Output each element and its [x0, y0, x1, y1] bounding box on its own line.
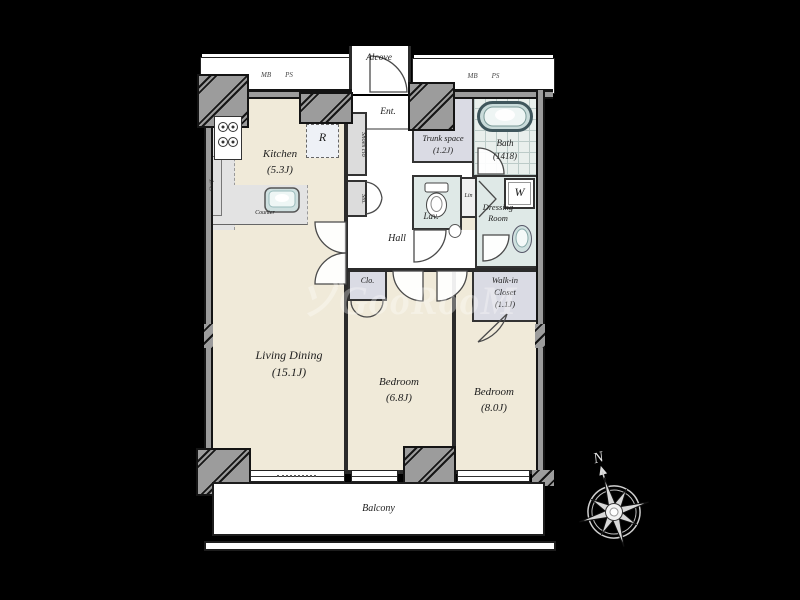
living-door-swing-upper	[315, 222, 346, 253]
toilet-icon	[420, 182, 453, 220]
vanity-sink-icon	[511, 224, 533, 254]
compass-rose: N	[570, 440, 660, 570]
bathtub-icon	[477, 101, 533, 132]
walk-in-closet-door	[478, 314, 507, 342]
bedroom-small-door-swing	[393, 271, 423, 301]
dressing-door-swing	[483, 235, 509, 261]
bath-door-swing	[478, 148, 504, 174]
stove-icon	[214, 116, 242, 160]
lavatory-basin-icon	[448, 224, 462, 238]
compass-north-label: N	[591, 449, 607, 468]
lavatory-door-swing	[414, 230, 446, 262]
closet-doors	[351, 301, 383, 317]
living-door-swing-lower	[315, 253, 346, 284]
kitchen-sink-icon	[264, 187, 300, 213]
door-layer	[0, 0, 800, 600]
dressing-folding-door	[479, 181, 496, 217]
storage-folding-door	[366, 182, 382, 214]
bedroom-large-door-swing	[437, 271, 467, 301]
entrance-door-swing	[370, 56, 407, 92]
floor-plan: MB PS MB PS	[0, 0, 800, 600]
